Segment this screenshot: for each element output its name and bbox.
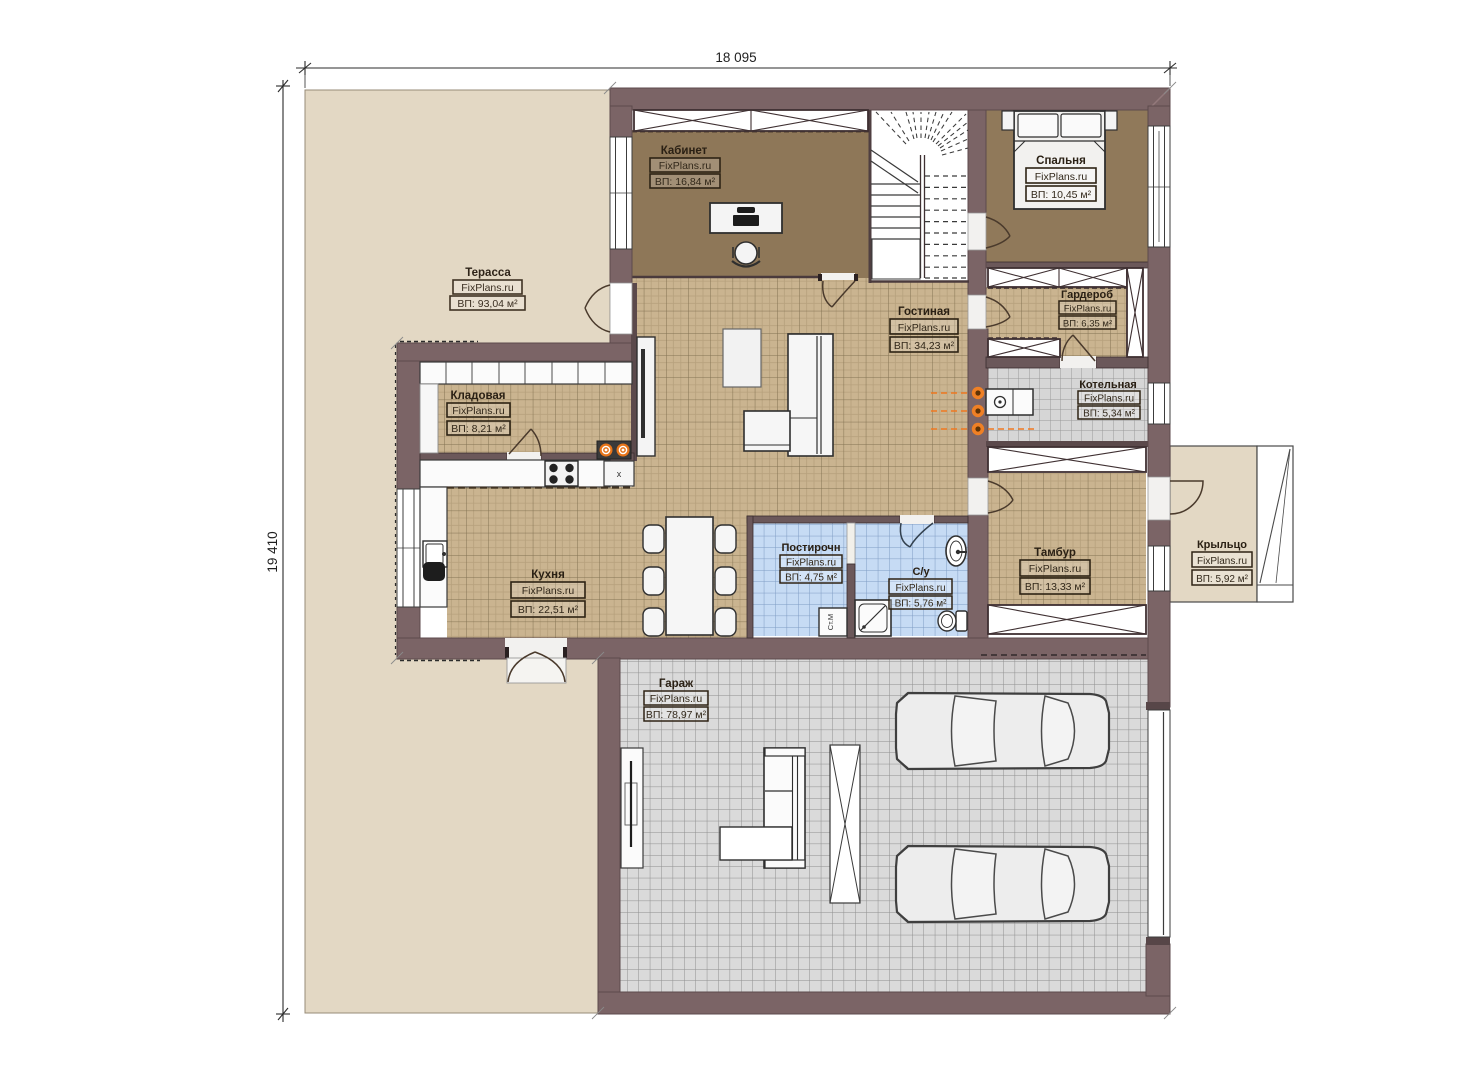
svg-text:Тамбур: Тамбур [1034, 547, 1076, 559]
svg-text:FixPlans.ru: FixPlans.ru [659, 160, 712, 172]
svg-text:18 095: 18 095 [715, 50, 756, 65]
svg-text:FixPlans.ru: FixPlans.ru [786, 558, 836, 569]
svg-text:Ст.М: Ст.М [826, 614, 835, 630]
svg-text:ВП: 16,84 м²: ВП: 16,84 м² [655, 176, 716, 188]
svg-text:ВП: 22,51 м²: ВП: 22,51 м² [518, 604, 579, 616]
svg-text:ВП: 6,35 м²: ВП: 6,35 м² [1063, 319, 1112, 330]
svg-text:FixPlans.ru: FixPlans.ru [1035, 171, 1088, 183]
svg-text:19 410: 19 410 [265, 531, 280, 572]
svg-text:ВП: 13,33 м²: ВП: 13,33 м² [1025, 581, 1086, 593]
svg-text:Спальня: Спальня [1036, 155, 1086, 167]
svg-text:FixPlans.ru: FixPlans.ru [522, 585, 575, 597]
svg-text:ВП: 4,75 м²: ВП: 4,75 м² [785, 573, 838, 584]
svg-text:ВП: 5,76 м²: ВП: 5,76 м² [895, 599, 948, 610]
svg-text:Котельная: Котельная [1079, 379, 1137, 391]
svg-text:Кабинет: Кабинет [661, 145, 708, 157]
svg-text:FixPlans.ru: FixPlans.ru [1064, 304, 1112, 315]
svg-text:Кладовая: Кладовая [450, 390, 505, 402]
svg-text:Гараж: Гараж [659, 678, 694, 690]
svg-text:Терасса: Терасса [465, 267, 511, 279]
svg-text:ВП: 34,23 м²: ВП: 34,23 м² [894, 340, 955, 352]
svg-text:FixPlans.ru: FixPlans.ru [650, 693, 703, 705]
svg-text:Кухня: Кухня [531, 569, 565, 581]
svg-text:ВП: 78,97 м²: ВП: 78,97 м² [646, 709, 707, 721]
svg-text:FixPlans.ru: FixPlans.ru [452, 405, 505, 417]
svg-text:FixPlans.ru: FixPlans.ru [1197, 556, 1247, 567]
svg-text:FixPlans.ru: FixPlans.ru [461, 282, 514, 294]
svg-text:FixPlans.ru: FixPlans.ru [898, 322, 951, 334]
svg-text:Гостиная: Гостиная [898, 306, 950, 318]
svg-text:x: x [617, 469, 622, 479]
svg-text:FixPlans.ru: FixPlans.ru [895, 583, 945, 594]
svg-text:ВП: 93,04 м²: ВП: 93,04 м² [457, 298, 518, 310]
svg-text:FixPlans.ru: FixPlans.ru [1084, 394, 1134, 405]
svg-text:FixPlans.ru: FixPlans.ru [1029, 563, 1082, 575]
svg-text:ВП: 5,34 м²: ВП: 5,34 м² [1083, 409, 1136, 420]
svg-text:Гардероб: Гардероб [1061, 289, 1113, 301]
svg-text:ВП: 5,92 м²: ВП: 5,92 м² [1196, 574, 1249, 585]
svg-text:Крыльцо: Крыльцо [1197, 539, 1247, 551]
svg-text:Постирочн: Постирочн [782, 542, 841, 554]
svg-text:С/у: С/у [912, 566, 930, 578]
svg-text:ВП: 8,21 м²: ВП: 8,21 м² [451, 423, 506, 435]
svg-text:ВП: 10,45 м²: ВП: 10,45 м² [1031, 189, 1092, 201]
